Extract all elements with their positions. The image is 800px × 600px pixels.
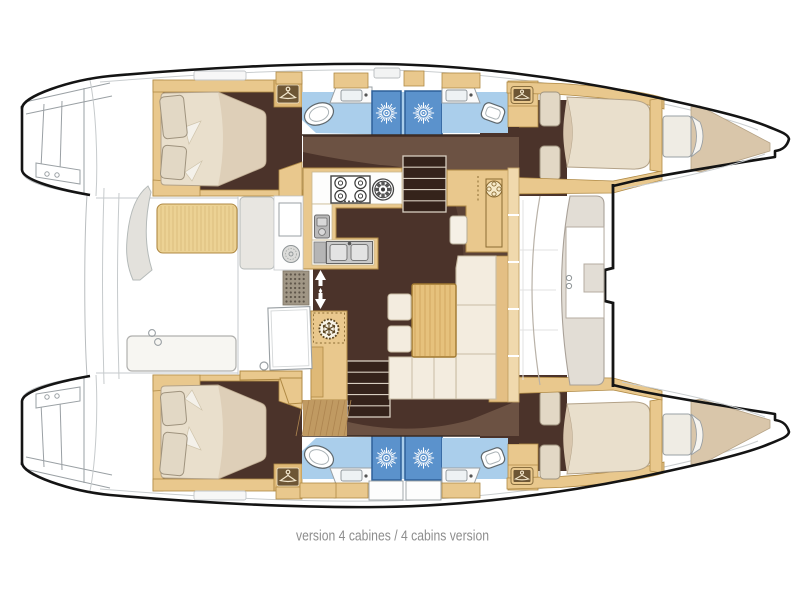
svg-text:version 4 cabines / 4 cabins v: version 4 cabines / 4 cabins version — [296, 528, 489, 545]
